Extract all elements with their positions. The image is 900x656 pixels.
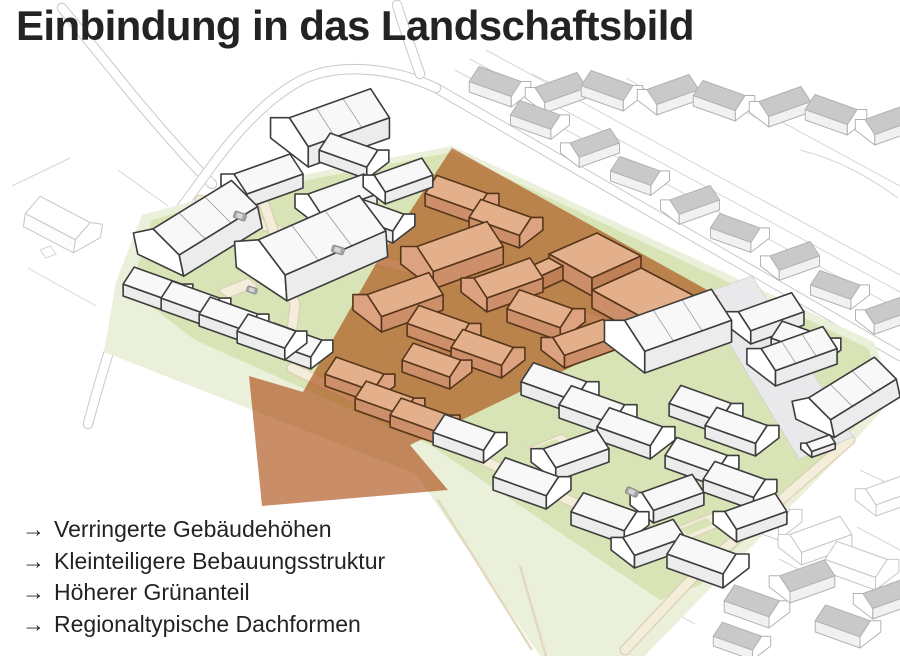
arrow-right-icon: →: [22, 514, 45, 546]
bullet-item: →Höherer Grünanteil: [22, 577, 385, 609]
bullet-text: Höherer Grünanteil: [54, 579, 250, 605]
arrow-right-icon: →: [22, 546, 45, 578]
bullet-list: →Verringerte Gebäudehöhen →Kleinteiliger…: [22, 514, 385, 640]
bullet-text: Kleinteiligere Bebauungsstruktur: [54, 548, 385, 574]
slide: Einbindung in das Landschaftsbild →Verri…: [0, 0, 900, 656]
bullet-text: Regionaltypische Dachformen: [54, 611, 361, 637]
left-context-building: [21, 195, 105, 257]
arrow-right-icon: →: [22, 609, 45, 641]
bullet-text: Verringerte Gebäudehöhen: [54, 516, 332, 542]
bullet-item: →Verringerte Gebäudehöhen: [22, 514, 385, 546]
bullet-item: →Kleinteiligere Bebauungsstruktur: [22, 546, 385, 578]
bullet-item: →Regionaltypische Dachformen: [22, 609, 385, 641]
arrow-right-icon: →: [22, 577, 45, 609]
page-title: Einbindung in das Landschaftsbild: [16, 2, 694, 50]
